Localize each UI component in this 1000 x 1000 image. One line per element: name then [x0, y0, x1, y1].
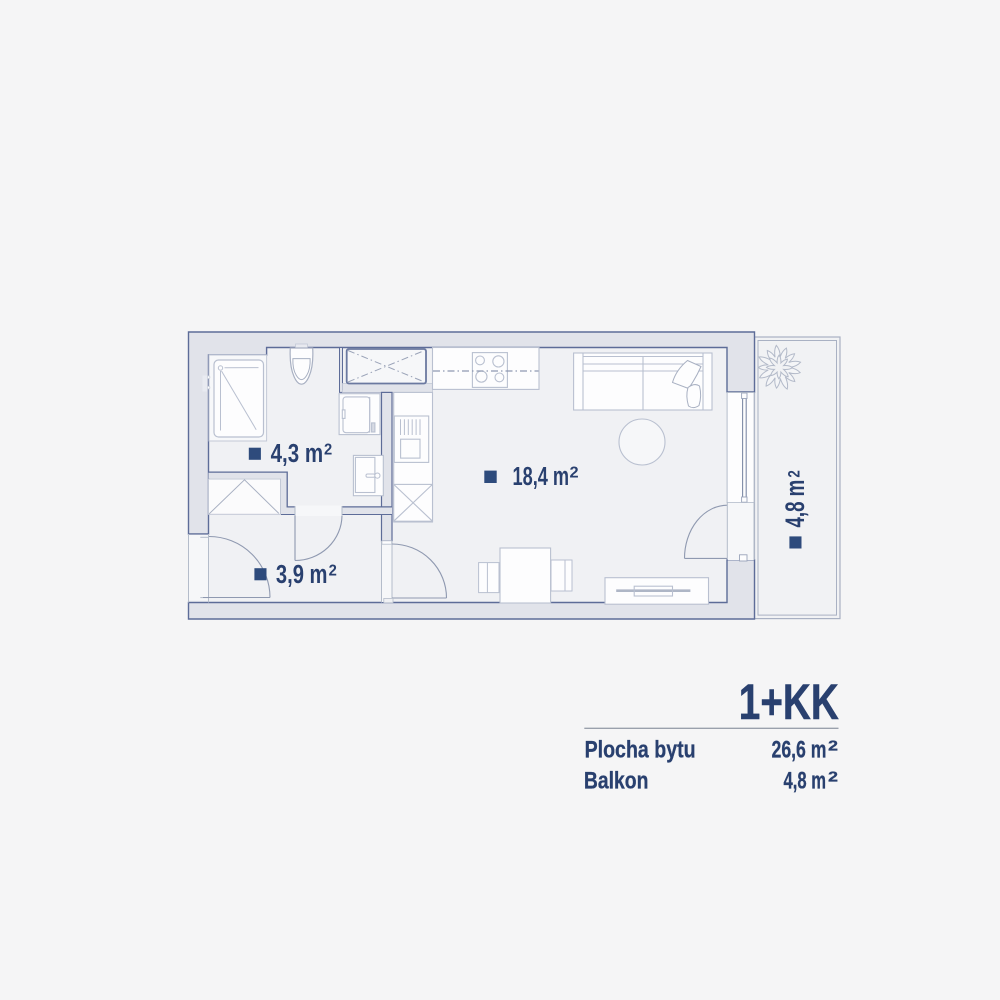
- svg-text:Balkon: Balkon: [584, 768, 649, 795]
- svg-text:2: 2: [828, 737, 838, 754]
- svg-text:2: 2: [570, 465, 579, 482]
- svg-text:2: 2: [324, 442, 332, 459]
- svg-text:4,3 m: 4,3 m: [271, 440, 324, 468]
- svg-text:2: 2: [329, 563, 337, 580]
- svg-text:4,8 m: 4,8 m: [784, 768, 827, 795]
- svg-text:2: 2: [785, 470, 804, 477]
- svg-text:18,4 m: 18,4 m: [513, 463, 570, 491]
- svg-text:2: 2: [828, 768, 838, 785]
- svg-text:1+KK: 1+KK: [739, 674, 839, 730]
- svg-text:26,6 m: 26,6 m: [772, 737, 827, 764]
- svg-text:4,8 m: 4,8 m: [780, 480, 810, 528]
- svg-text:Plocha bytu: Plocha bytu: [585, 737, 696, 764]
- svg-text:3,9 m: 3,9 m: [276, 561, 328, 589]
